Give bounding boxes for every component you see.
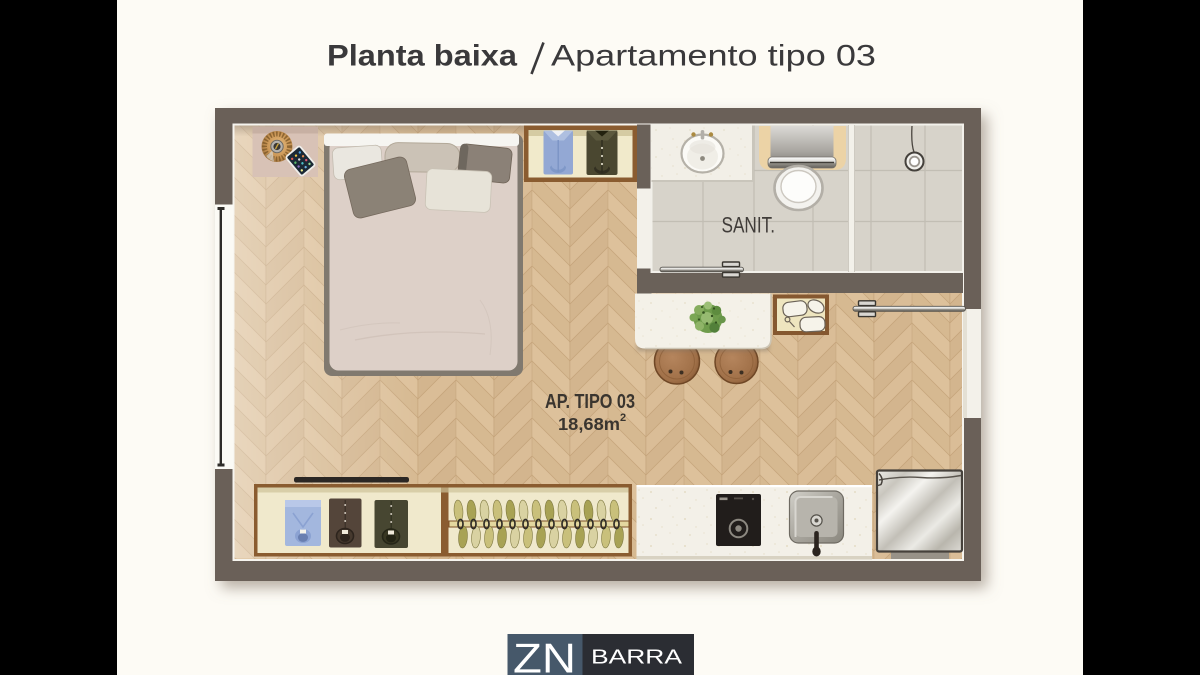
svg-text:BARRA: BARRA [591,646,682,669]
svg-text:2: 2 [620,412,626,424]
svg-text:Apartamento tipo 03: Apartamento tipo 03 [551,40,876,73]
svg-text:AP. TIPO 03: AP. TIPO 03 [545,390,635,413]
svg-text:ZN: ZN [513,635,576,675]
svg-text:18,68m: 18,68m [558,414,620,434]
svg-text:SANIT.: SANIT. [722,213,776,238]
svg-text:Planta baixa: Planta baixa [327,40,517,73]
